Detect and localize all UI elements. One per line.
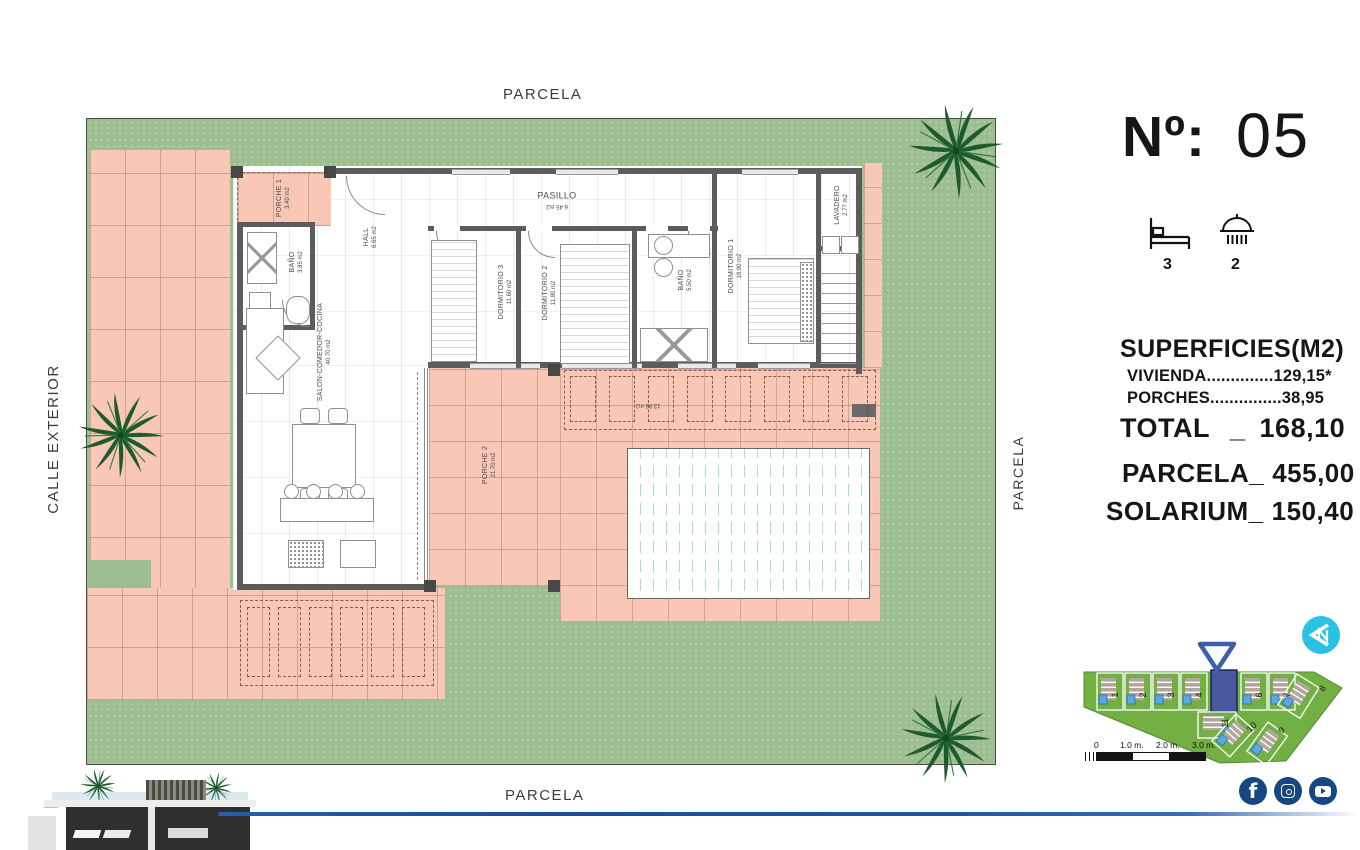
side-path-paving bbox=[864, 163, 882, 368]
wall-bano1-right bbox=[310, 222, 315, 330]
room-label-dorm3: DORMITORIO 311.60 m2 bbox=[498, 265, 514, 320]
wall-right bbox=[856, 168, 862, 374]
door-gap bbox=[646, 226, 668, 231]
swimming-pool bbox=[627, 448, 870, 599]
chair bbox=[328, 408, 348, 424]
room-label-porche1: PORCHE 13.40 m2 bbox=[276, 179, 292, 217]
roof-overhang-dashed bbox=[417, 372, 418, 580]
palm-tree-icon bbox=[68, 382, 174, 488]
svg-text:1: 1 bbox=[1110, 692, 1120, 697]
sink bbox=[654, 258, 673, 277]
dining-table bbox=[292, 424, 356, 488]
stove bbox=[288, 540, 324, 568]
sliding-door bbox=[424, 368, 428, 584]
svg-text:4: 4 bbox=[1194, 692, 1204, 697]
superficies-title: SUPERFICIES(M2) bbox=[1120, 335, 1344, 364]
instagram-icon[interactable] bbox=[1274, 777, 1302, 805]
parcela-label-right: PARCELA bbox=[1010, 423, 1026, 523]
total-row: TOTAL_168,10 bbox=[1120, 413, 1345, 444]
column bbox=[324, 166, 336, 178]
stool bbox=[328, 484, 343, 499]
wardrobe-dorm1 bbox=[800, 262, 814, 342]
column bbox=[231, 166, 243, 178]
parcela-row: PARCELA_455,00 bbox=[1122, 458, 1355, 489]
location-pointer-icon bbox=[1200, 644, 1234, 670]
bedroom-count: 3 bbox=[1163, 256, 1172, 274]
shower-icon bbox=[1216, 212, 1258, 252]
stool bbox=[350, 484, 365, 499]
wall-dorm2-bano2 bbox=[632, 230, 637, 368]
pergola-beams bbox=[570, 376, 868, 422]
wall-bottom bbox=[237, 584, 433, 590]
room-label-salon: SALON-COMEDOR-COCINA40.70 m2 bbox=[317, 303, 333, 401]
column bbox=[424, 580, 436, 592]
stool bbox=[306, 484, 321, 499]
kitchen-sink bbox=[340, 540, 376, 568]
svg-text:7: 7 bbox=[1282, 692, 1292, 697]
wardrobe bbox=[247, 232, 277, 284]
laundry-machine bbox=[822, 236, 840, 254]
plot-number-value: 05 bbox=[1236, 100, 1310, 172]
parcela-label-bottom: PARCELA bbox=[505, 787, 584, 804]
wall-bano2-dorm1 bbox=[712, 168, 717, 368]
plan-sheet: PARCELA PARCELA CALLE EXTERIOR PARCELA bbox=[0, 0, 1360, 850]
bed-dorm3 bbox=[431, 240, 477, 362]
shower-tray bbox=[640, 328, 708, 362]
driveway-paving bbox=[90, 150, 230, 590]
porches-line: PORCHES...............38,95 bbox=[1127, 389, 1324, 408]
youtube-icon[interactable] bbox=[1309, 777, 1337, 805]
palm-tree-icon bbox=[897, 92, 1015, 210]
room-label-lavadero: LAVADERO2.77 m2 bbox=[834, 185, 850, 225]
laundry-machine bbox=[841, 236, 859, 254]
parcela-label-top: PARCELA bbox=[503, 86, 582, 103]
blue-divider-line bbox=[218, 812, 1360, 816]
chair bbox=[300, 408, 320, 424]
room-label-dorm2: DORMITORIO 211.80 m2 bbox=[542, 266, 558, 321]
room-label-pasillo: PASILLO 6.45 m2 bbox=[538, 191, 577, 210]
svg-text:3: 3 bbox=[1166, 692, 1176, 697]
villa-photo bbox=[28, 770, 263, 850]
window bbox=[678, 363, 736, 369]
stool bbox=[284, 484, 299, 499]
window bbox=[758, 363, 810, 369]
wall-pasillo bbox=[428, 226, 718, 231]
highlighted-plot bbox=[1211, 670, 1237, 712]
bed-icon bbox=[1147, 216, 1193, 252]
wall-dorm3-dorm2 bbox=[516, 230, 521, 368]
staircase bbox=[820, 268, 856, 364]
wall-left bbox=[237, 222, 243, 590]
toilet bbox=[286, 296, 310, 324]
room-label-bano2: BAÑO5.50 m2 bbox=[678, 269, 694, 291]
kitchen-island bbox=[280, 498, 374, 522]
facebook-icon[interactable]: f bbox=[1239, 777, 1267, 805]
window bbox=[742, 169, 798, 175]
window bbox=[556, 169, 618, 175]
calle-exterior-label: CALLE EXTERIOR bbox=[45, 355, 62, 523]
carport-beams bbox=[247, 607, 425, 677]
column bbox=[548, 364, 560, 376]
room-label-hall: HALL6.65 m2 bbox=[363, 226, 379, 248]
vivienda-line: VIVIENDA..............129,15* bbox=[1127, 367, 1332, 386]
window bbox=[470, 363, 540, 369]
svg-text:2: 2 bbox=[1138, 692, 1148, 697]
column bbox=[548, 580, 560, 592]
plot-number-label: Nº: bbox=[1122, 104, 1206, 170]
wall-bano1-top bbox=[237, 222, 315, 227]
room-label-porche2: PORCHE 221.70 m2 bbox=[482, 446, 498, 484]
bathroom-count: 2 bbox=[1231, 256, 1240, 274]
solarium-row: SOLARIUM_150,40 bbox=[1106, 496, 1354, 527]
scale-bar: 0 1.0 m. 2.0 m. 3.0 m. bbox=[1094, 740, 1234, 766]
sink bbox=[654, 236, 673, 255]
grass-notch bbox=[87, 560, 151, 590]
pergola-area-label: 13.86 m2 bbox=[635, 400, 660, 408]
svg-text:11: 11 bbox=[1220, 718, 1230, 727]
room-label-bano1: BAÑO3.85 m2 bbox=[289, 251, 305, 273]
bed-dorm2 bbox=[560, 244, 630, 364]
room-label-dorm1: DORMITORIO 118.90 m2 bbox=[728, 239, 744, 294]
window bbox=[452, 169, 510, 175]
svg-text:6: 6 bbox=[1254, 692, 1264, 697]
palm-tree-icon bbox=[890, 682, 1002, 794]
